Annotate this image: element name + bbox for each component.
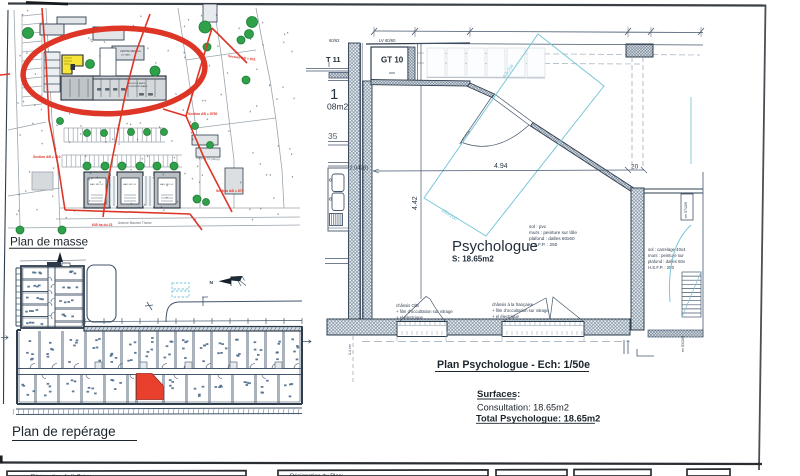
svg-text:HALL RDC+3: HALL RDC+3 <box>123 183 137 186</box>
svg-text:08m2: 08m2 <box>327 102 349 112</box>
svg-text:1.4 cm: 1.4 cm <box>348 344 352 355</box>
svg-text:Psychologue: Psychologue <box>452 238 538 255</box>
svg-text:+ film d’occultation sur vi: + film d’occultation sur vitrage <box>396 309 453 314</box>
svg-text:Plan Psychologue - Ech: 1/50e: Plan Psychologue - Ech: 1/50e <box>437 359 590 371</box>
svg-text:645 ha du 23: 645 ha du 23 <box>92 223 112 227</box>
svg-text:plafond : dalles 60x60: plafond : dalles 60x60 <box>529 236 575 241</box>
svg-text:murs : peinture sur tôle: murs : peinture sur tôle <box>529 230 577 235</box>
svg-text:4.42: 4.42 <box>412 196 419 210</box>
svg-text:1: 1 <box>330 86 338 103</box>
svg-text:Avenue Maurice Thorez: Avenue Maurice Thorez <box>118 221 152 225</box>
svg-text:GT 10: GT 10 <box>381 56 404 65</box>
svg-text:Plan de repérage: Plan de repérage <box>12 424 116 439</box>
svg-text:Section AB = 879: Section AB = 879 <box>216 189 244 193</box>
svg-text:murs : peinture sur: murs : peinture sur <box>648 253 684 258</box>
svg-text:Total Psychologue: 18.65m2: Total Psychologue: 18.65m2 <box>476 414 600 424</box>
svg-text:châssis à la française: châssis à la française <box>492 302 534 307</box>
svg-text:180x200: 180x200 <box>440 208 458 222</box>
svg-text:T 11: T 11 <box>326 55 341 64</box>
svg-text:HALL RDC+3: HALL RDC+3 <box>90 183 104 186</box>
svg-text:Section AB = 8750: Section AB = 8750 <box>188 112 217 116</box>
svg-text:+ film d’occultation sur v: + film d’occultation sur vitrage <box>492 308 549 313</box>
svg-text:en 53/209: en 53/209 <box>681 336 685 352</box>
svg-text:en 57/209: en 57/209 <box>684 202 688 218</box>
svg-text:4.94: 4.94 <box>494 163 508 170</box>
svg-text:+ el électrique: + el électrique <box>492 314 519 319</box>
svg-text:Surfaces:: Surfaces: <box>477 389 520 400</box>
svg-text:plafond : dalles 60x: plafond : dalles 60x <box>648 259 686 264</box>
svg-text:Section AB = 310: Section AB = 310 <box>33 155 61 159</box>
svg-text:N: N <box>210 280 214 286</box>
svg-text:châssis O/B: châssis O/B <box>396 303 419 308</box>
svg-text:2.042(l): 2.042(l) <box>350 166 369 172</box>
svg-text:+ el électrique: + el électrique <box>396 315 423 320</box>
svg-text:H.S.F.P. : 250: H.S.F.P. : 250 <box>529 242 558 247</box>
svg-text:LV 60/60: LV 60/60 <box>379 38 396 43</box>
svg-text:60/62: 60/62 <box>329 38 340 43</box>
svg-text:S: 18.65m2: S: 18.65m2 <box>452 255 494 264</box>
svg-text:20: 20 <box>631 164 639 171</box>
svg-text:Section AB = 875: Section AB = 875 <box>228 54 256 62</box>
svg-text:Plan de masse: Plan de masse <box>10 235 88 249</box>
svg-text:sol : pvc: sol : pvc <box>529 224 547 229</box>
svg-text:35: 35 <box>328 131 338 141</box>
svg-text:sol : carrelage 40x4: sol : carrelage 40x4 <box>648 247 686 252</box>
svg-text:Consultation: 18.65m2: Consultation: 18.65m2 <box>477 403 569 413</box>
svg-text:CENTRE MEDICAL: CENTRE MEDICAL <box>120 50 142 53</box>
svg-text:PLURIDISCIPLINAIRE: PLURIDISCIPLINAIRE <box>128 85 148 88</box>
svg-text:MAISON DE SANTE: MAISON DE SANTE <box>127 82 146 85</box>
svg-text:DU PARC: DU PARC <box>121 54 131 57</box>
